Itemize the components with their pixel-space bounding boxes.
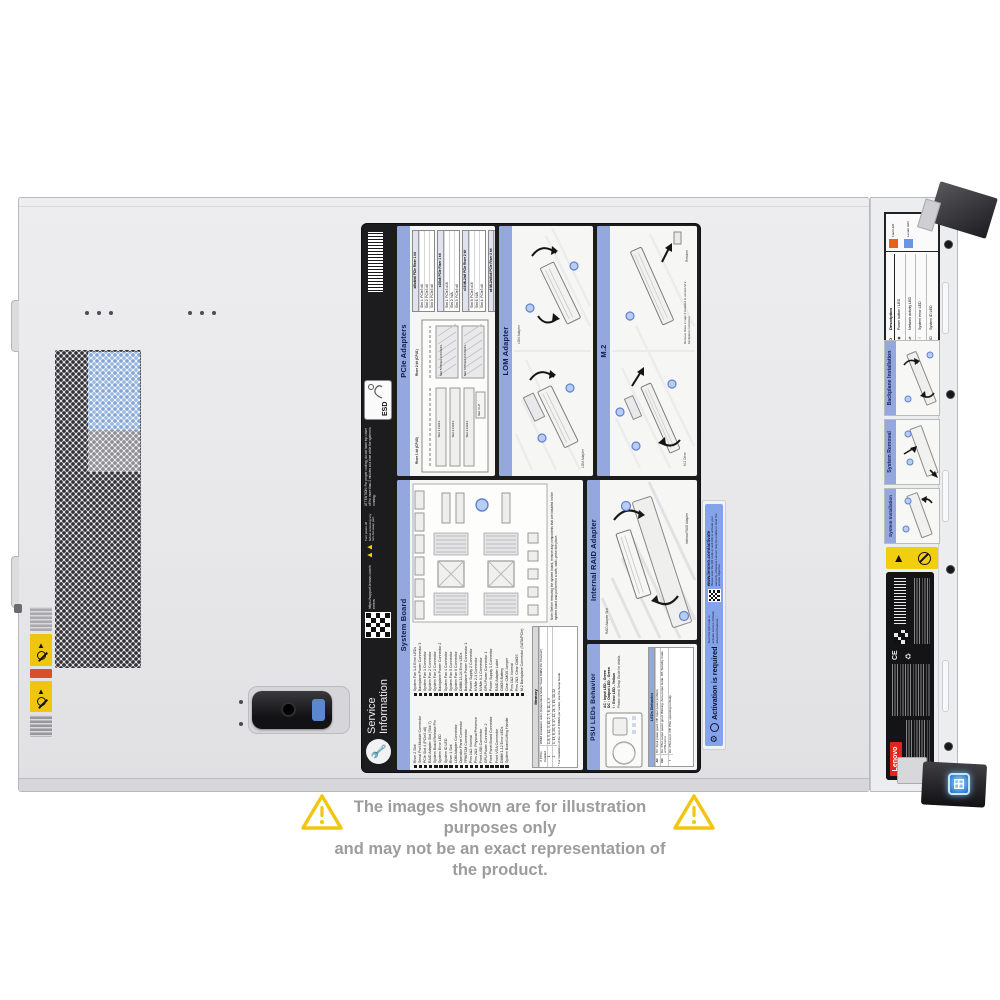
screw <box>946 565 955 574</box>
lom-callout: LOM Adapter <box>582 449 586 468</box>
m2-diagram <box>610 226 697 476</box>
warning-triangle-icon: ▲ <box>893 552 905 564</box>
riser1-slots: Slot 1 FH/FLSlot 2 FH/FLSlot 3 FH/FL <box>438 396 480 462</box>
esd-sticker: ESD <box>364 380 392 420</box>
panel-system-board: System Board Riser 2 SlotSerial Port Mod… <box>397 480 583 770</box>
chassis-latch-nub <box>14 604 22 613</box>
vent-internal-view <box>88 352 140 430</box>
recycle-icon: ♻ <box>904 653 913 660</box>
system-installation-diagram <box>896 488 940 543</box>
locate-led-swatch <box>904 239 913 248</box>
vent-light-patch <box>88 430 140 472</box>
system-board-diagram <box>412 483 548 623</box>
lenovo-regulatory-label: Lenovo CE ♻ <box>886 572 934 780</box>
activation-sticker: ⚙ Activation is required Scan the QR cod… <box>705 504 723 746</box>
regulatory-barcode <box>894 578 906 624</box>
psu-led-legend: AC : Input LED - GreenDC : Output LED - … <box>603 646 622 708</box>
screw <box>239 700 243 704</box>
panel-title: Internal RAID Adapter <box>587 480 600 640</box>
riser1-label: Riser 1 kit (CPU0) <box>416 437 420 464</box>
screw <box>97 311 101 315</box>
rail-slot <box>942 470 949 522</box>
front-panel-led-label: LEDDescription ◉Power button / LED ⇄Netw… <box>884 212 940 350</box>
system-board-legend-left: Riser 2 SlotSerial Port Module Connector… <box>413 698 529 768</box>
rail-section-backplane-installation: Backplane Installation <box>884 340 940 416</box>
left-orange-label <box>30 669 52 678</box>
activation-text: Scan the QR code to activate Lenovo XCla… <box>708 605 719 643</box>
clock-icon <box>710 723 719 732</box>
lom-diagram <box>512 226 593 476</box>
gear-icon: ⚙ <box>709 735 719 743</box>
left-warning-label: ▲ <box>30 681 52 712</box>
m2-callout: Retainer <box>686 250 690 262</box>
barcode <box>366 230 385 294</box>
latch-knob <box>281 702 296 717</box>
riser2-label: Riser 2 kit (CPU1) <box>416 349 420 376</box>
disclaimer-warning-triangle <box>672 793 716 831</box>
cover-bottom-edge <box>19 778 869 791</box>
fault-led-swatch <box>889 239 898 248</box>
screw <box>200 311 204 315</box>
rail-caution-sticker: ▲ <box>886 547 938 569</box>
system-board-legend-right: System Fan 1-6 Error LEDsBackplane Power… <box>413 626 529 696</box>
panel-m2: M.2 <box>597 226 697 476</box>
cover-seam <box>19 206 869 207</box>
memory-table: Memory # CPUs installedDIMM installation… <box>532 626 578 768</box>
no-touch-icon <box>37 651 46 660</box>
led-description-table: LEDDescription ◉Power button / LED ⇄Netw… <box>888 254 936 346</box>
regulatory-text-block <box>914 578 930 644</box>
left-barcode-label <box>30 715 52 737</box>
panel-internal-raid: Internal RAID Adapter RAID Adapter Slot … <box>587 480 697 640</box>
raid-callout: Internal RAID Adapter <box>686 513 690 544</box>
support-qr-code <box>365 612 391 638</box>
warning-triangle-icon: ▲▲ <box>365 543 376 559</box>
support-url: https://support.lenovo.com/servers <box>368 565 377 609</box>
regulatory-qr <box>894 630 908 644</box>
warning-triangle-icon: ▲ <box>37 641 45 650</box>
panel-title: PSU LEDs Behavior <box>587 644 600 770</box>
esd-wrist-strap-icon <box>366 382 386 402</box>
riser2-slots: Slot 5 PCIe3 x16 FH/FLSlot 6 PCIe3 x16 F… <box>440 330 488 376</box>
disclaimer-text: The images shown are for illustration pu… <box>325 797 675 881</box>
service-tools-icon: 🔧 <box>366 739 391 764</box>
left-barcode-label <box>30 607 52 631</box>
screw <box>188 311 192 315</box>
service-information-title: Service Information <box>366 679 390 734</box>
left-warning-label: ▲ <box>30 634 52 666</box>
screw <box>944 742 953 751</box>
rail-slot <box>942 282 949 334</box>
raid-callout: RAID Adapter Slot <box>606 608 610 634</box>
panel-psu-leds: PSU LEDs Behavior AC : Input LED - Green… <box>587 644 697 770</box>
panel-title: M.2 <box>597 226 610 476</box>
power-button <box>948 773 970 795</box>
system-board-note: Note: Before removing the system board, … <box>551 484 559 620</box>
screw <box>946 390 955 399</box>
psu-led-table: LEDs Behavior ACOn: Input power good. Of… <box>648 647 694 767</box>
activation-title: Activation is required <box>710 646 719 720</box>
rail-section-system-removal: System Removal <box>884 419 940 485</box>
no-touch-icon <box>37 697 46 706</box>
ce-mark: CE <box>892 650 899 660</box>
latch-blue-button <box>312 699 325 721</box>
activation-qr-code <box>708 589 721 602</box>
panel-title: LOM Adapter <box>499 226 512 476</box>
panel-title: PCIe Adapters <box>397 226 410 476</box>
service-information-label: 🔧 Service Information https://support.le… <box>362 224 700 772</box>
attention-note: ATTENTION: For proper cooling, do not ha… <box>365 424 377 506</box>
screw <box>85 311 89 315</box>
panel-title: System Board <box>397 480 410 770</box>
raid-diagram <box>600 480 697 640</box>
warning-triangle-icon: ▲ <box>37 687 45 696</box>
rail-section-system-installation: System Installation <box>884 488 940 544</box>
psu-diagram <box>603 712 645 768</box>
activation-text: Please scan the QR code or web link to a… <box>711 507 722 586</box>
regulatory-text-block <box>892 664 930 716</box>
m2-note: Remove Riser 2 cage if installed to acce… <box>684 274 691 344</box>
lom-callout: LOM Adapter <box>518 325 522 344</box>
panel-pcie-adapters: PCIe Adapters Ri <box>397 226 495 476</box>
pcie-riser-tables: x8/x8/x8 PCIe Riser 1 kitSlot 1: PCIe3 x… <box>412 230 495 312</box>
server-top-view-photo: COMPAN COMPAN COMPAN COMPAN COMPAN ▲ ▲ 🔧 <box>0 0 1000 1000</box>
rail-slot <box>942 660 949 712</box>
no-touch-icon <box>918 552 931 565</box>
psu-note: Please check Setup Guide for details. <box>618 646 622 708</box>
label-header-strip: 🔧 Service Information https://support.le… <box>362 224 395 772</box>
slot4-label: Slot 4 LP <box>478 404 482 416</box>
panel-lom-adapter: LOM Adapter <box>499 226 593 476</box>
system-removal-diagram <box>896 419 940 484</box>
m2-callout: M.2 Drive <box>684 452 688 466</box>
screw <box>109 311 113 315</box>
screw <box>944 240 953 249</box>
power-off-warning-sticker: ▲▲ Turn power off before removing any no… <box>365 511 376 559</box>
chassis-tab <box>11 300 19 352</box>
screw <box>239 722 243 726</box>
screw <box>212 311 216 315</box>
chassis-tab <box>11 556 19 608</box>
backplane-installation-diagram <box>896 340 940 415</box>
